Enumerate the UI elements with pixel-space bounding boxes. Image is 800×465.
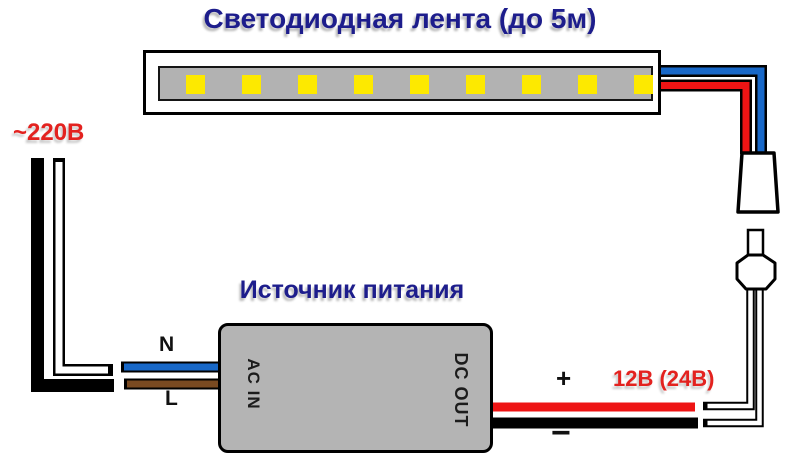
led-strip <box>158 66 653 101</box>
mains-black-wire <box>38 158 115 386</box>
minus-label: − <box>551 414 571 453</box>
mains-white-wire-outline <box>59 158 113 370</box>
line-label: L <box>165 387 178 411</box>
strip-red-wire-core <box>659 86 746 155</box>
mains-white-wire-core <box>59 162 108 370</box>
output-voltage-label: 12В (24В) <box>613 366 714 392</box>
led-chip <box>354 75 373 94</box>
led-strip-title: Светодиодная лента (до 5м) <box>0 3 800 35</box>
led-chip <box>410 75 429 94</box>
female-plug-body <box>737 255 775 289</box>
led-chip <box>186 75 205 94</box>
led-chip <box>466 75 485 94</box>
mains-voltage-label: ~220В <box>13 119 84 147</box>
male-plug-connector <box>738 153 778 212</box>
led-chip <box>578 75 597 94</box>
led-chip <box>522 75 541 94</box>
strip-red-wire-outline <box>659 86 746 155</box>
wiring-diagram: Светодиодная лента (до 5м) Источник пита… <box>0 0 800 465</box>
power-supply-title: Источник питания <box>210 276 494 305</box>
plus-label: + <box>556 363 571 394</box>
led-chip <box>242 75 261 94</box>
led-chip <box>634 75 653 94</box>
dc-out-label: DC OUT <box>450 348 472 432</box>
neutral-label: N <box>159 333 174 357</box>
led-chip <box>298 75 317 94</box>
ac-in-label: AC IN <box>242 352 264 416</box>
